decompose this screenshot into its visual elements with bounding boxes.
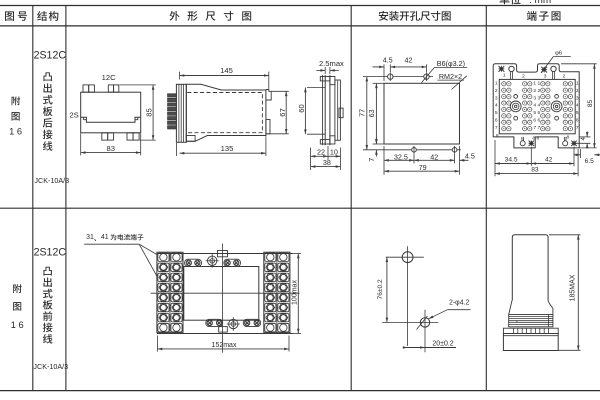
svg-text:1: 1: [533, 80, 536, 86]
svg-text:67: 67: [278, 108, 287, 116]
svg-text:6: 6: [495, 118, 498, 124]
svg-text:2S: 2S: [69, 111, 78, 120]
svg-text:34.5: 34.5: [505, 156, 518, 163]
svg-text:8: 8: [537, 136, 540, 142]
svg-text:JCK-10A/3: JCK-10A/3: [34, 176, 69, 185]
svg-text:4.5: 4.5: [465, 152, 475, 161]
svg-text:4: 4: [576, 103, 579, 109]
svg-text:79: 79: [419, 163, 427, 172]
svg-text:42: 42: [545, 156, 553, 163]
svg-text:83: 83: [106, 144, 114, 153]
svg-text:2: 2: [495, 88, 498, 94]
svg-text:42: 42: [405, 56, 413, 65]
svg-text:5: 5: [495, 110, 498, 116]
svg-text:38: 38: [323, 158, 331, 167]
svg-text:42: 42: [430, 152, 438, 161]
svg-text:4: 4: [495, 103, 498, 109]
svg-text:135: 135: [221, 144, 234, 153]
svg-text:3: 3: [538, 95, 541, 101]
svg-text:3: 3: [576, 95, 579, 101]
svg-text:32.5: 32.5: [394, 152, 408, 161]
svg-text:5: 5: [576, 110, 579, 116]
svg-text:2: 2: [576, 88, 579, 94]
svg-text:7: 7: [538, 125, 541, 131]
svg-text:31: 31: [86, 234, 94, 241]
svg-text:41: 41: [101, 234, 109, 241]
svg-text:4: 4: [538, 103, 541, 109]
svg-text:RM2×2: RM2×2: [439, 72, 462, 81]
svg-text:100max: 100max: [292, 280, 299, 305]
svg-text:7: 7: [576, 125, 579, 131]
svg-text:JCK-10A/3: JCK-10A/3: [33, 362, 68, 371]
svg-text:5: 5: [533, 110, 536, 116]
svg-text:2: 2: [538, 88, 541, 94]
svg-text:6: 6: [533, 118, 536, 124]
svg-text:3: 3: [533, 95, 536, 101]
svg-text:7: 7: [367, 158, 376, 162]
svg-text:4: 4: [580, 137, 587, 141]
svg-text:2.5max: 2.5max: [319, 59, 344, 68]
svg-text:63: 63: [367, 109, 376, 117]
svg-text:12C: 12C: [102, 73, 116, 82]
svg-text:4.5: 4.5: [383, 56, 393, 65]
svg-text:: mm: : mm: [529, 0, 551, 6]
svg-text:2: 2: [563, 73, 566, 79]
svg-text:1: 1: [495, 80, 498, 86]
svg-text:3: 3: [544, 73, 547, 79]
svg-text:5: 5: [538, 110, 541, 116]
svg-text:22: 22: [317, 148, 325, 157]
svg-text:1: 1: [538, 80, 541, 86]
svg-text:1 6: 1 6: [11, 320, 24, 330]
svg-text:85: 85: [145, 108, 154, 116]
svg-text:185MAX: 185MAX: [570, 274, 577, 301]
svg-text:7: 7: [533, 125, 536, 131]
svg-text:85: 85: [587, 100, 594, 108]
svg-text:6.5: 6.5: [585, 158, 594, 165]
svg-text:2: 2: [522, 73, 525, 79]
svg-text:1 6: 1 6: [9, 126, 22, 136]
svg-text:1: 1: [503, 73, 506, 79]
svg-text:6: 6: [538, 118, 541, 124]
svg-text:152max: 152max: [212, 342, 237, 349]
svg-text:20±0.2: 20±0.2: [432, 340, 453, 347]
svg-text:2S12C: 2S12C: [34, 50, 67, 62]
svg-text:60: 60: [297, 104, 306, 112]
svg-text:76±0.2: 76±0.2: [377, 279, 384, 299]
svg-text:145: 145: [220, 66, 233, 75]
svg-text:77: 77: [358, 109, 367, 117]
svg-text:3: 3: [495, 95, 498, 101]
svg-text:10: 10: [330, 148, 338, 157]
svg-text:2S12C: 2S12C: [34, 247, 67, 259]
svg-text:φ6: φ6: [555, 51, 562, 57]
svg-text:2-φ4.2: 2-φ4.2: [449, 300, 470, 307]
svg-text:1: 1: [576, 80, 579, 86]
svg-text:83: 83: [531, 167, 539, 174]
svg-text:4: 4: [533, 103, 536, 109]
svg-text:B6(φ3.2): B6(φ3.2): [437, 59, 465, 68]
svg-text:7: 7: [495, 125, 498, 131]
svg-text:6: 6: [576, 118, 579, 124]
svg-text:8: 8: [496, 133, 499, 139]
svg-text:8: 8: [567, 134, 570, 140]
svg-text:2: 2: [533, 88, 536, 94]
